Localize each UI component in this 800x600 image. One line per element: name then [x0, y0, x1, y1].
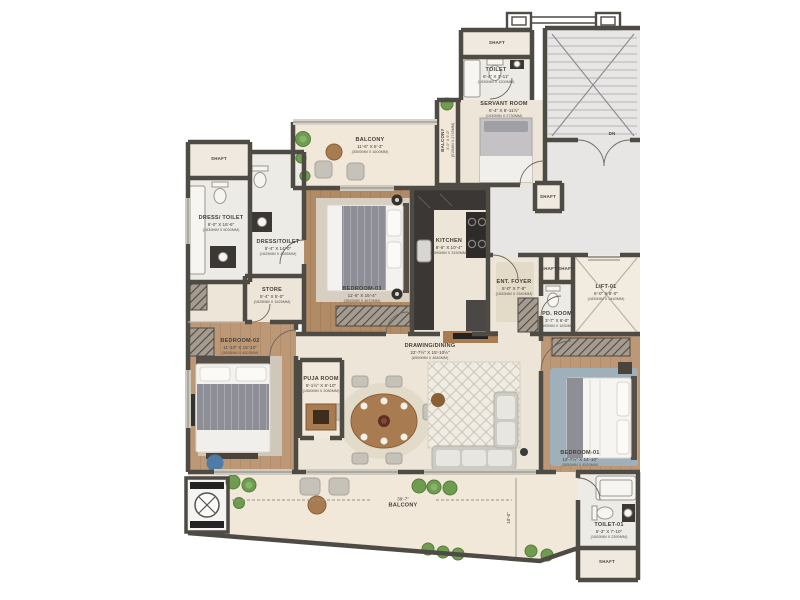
label-dim-10ft: 10'-0" — [506, 512, 512, 524]
sink-icon — [417, 240, 431, 262]
wc-icon — [252, 166, 268, 171]
floor-plan-clip: SHAFT TOILET6'-4" X 3'-11"(1930MM X 1200… — [0, 0, 642, 600]
label-bedroom-03: BEDROOM-0311'-6" X 15'-4"(3500MM X 4670M… — [342, 286, 381, 304]
wc-icon — [592, 506, 597, 520]
nightstand-icon — [618, 362, 632, 374]
table-icon — [308, 496, 326, 514]
cabinet-icon — [190, 284, 207, 310]
chair-icon — [300, 478, 320, 495]
label-puja-room: PUJA ROOM5'-1½" X 6'-10"(1560MM X 2080MM… — [303, 376, 340, 394]
label-shaft-left: SHAFT — [211, 156, 227, 162]
label-balcony-servant: BALCONY3'-0" X 9'-0"(915MM X 2745MM) — [440, 123, 456, 158]
pillow-icon — [236, 367, 266, 381]
pillow-icon — [617, 420, 629, 454]
chair-icon — [386, 453, 402, 464]
bed-headboard — [196, 356, 270, 364]
beanbag-icon — [207, 455, 224, 472]
pillow-icon — [387, 210, 401, 236]
wc-icon — [487, 59, 503, 65]
label-kitchen: KITCHEN8'-6" X 10'-4"(2590MM X 3150MM) — [431, 238, 468, 256]
wardrobe-icon — [189, 328, 214, 356]
chair-icon — [315, 161, 332, 178]
bed-headboard — [403, 203, 409, 293]
chair-icon — [347, 163, 364, 180]
puja-cabinet-icon — [306, 404, 336, 430]
fridge-icon — [466, 300, 488, 332]
pillow-icon — [200, 367, 230, 381]
label-store: STORE5'-4" X 5'-0"(1625MM X 1525MM) — [254, 287, 291, 305]
wardrobe-icon — [336, 306, 410, 326]
chair-icon — [386, 376, 402, 387]
wc-icon — [212, 182, 228, 187]
label-lift: LIFT-016'-0" X 8'-0"(1830MM X 2440MM) — [588, 284, 625, 302]
label-dress-toilet-2: DRESS/TOILET5'-4" X 14'-0"(1625MM X 4265… — [257, 239, 300, 257]
kitchen-counter — [434, 190, 488, 210]
floor-plan: SHAFT TOILET6'-4" X 3'-11"(1930MM X 1200… — [0, 0, 800, 600]
wc-icon — [546, 286, 560, 291]
label-balcony-bottom: 39'-7"BALCONY — [389, 496, 418, 509]
table-icon — [326, 144, 342, 160]
side-table-icon — [431, 393, 445, 407]
servant-furniture — [480, 118, 532, 182]
label-dn: DN — [609, 131, 616, 137]
label-toilet-01: TOILET-015'-3" X 7'-10"(1600MM X 2390MM) — [591, 522, 628, 540]
label-servant-room: SERVANT ROOM6'-4" X 8'-11½"(1930MM X 273… — [480, 101, 527, 119]
pillow-icon — [484, 121, 528, 132]
pillow-icon — [387, 242, 401, 268]
chair-icon — [329, 478, 349, 495]
label-balcony-top: BALCONY11'-6" X 5'-3"(3500MM X 1600MM) — [352, 137, 389, 155]
label-drawing-dining: DRAWING/DINING22'-7½" X 15'-10½"(6900MM … — [405, 343, 456, 361]
bed-headboard — [631, 376, 637, 460]
label-shaft-mid: SHAFT — [540, 194, 556, 200]
label-bedroom-01: BEDROOM-0112'-7½" X 14'-10"(3850MM X 452… — [560, 450, 599, 468]
sofa-set-icon — [428, 362, 528, 470]
floor-lamp-icon — [520, 448, 528, 456]
label-shaft-top: SHAFT — [489, 40, 505, 46]
shoe-cabinet-icon — [518, 298, 538, 332]
floor-plan-graphics — [0, 0, 642, 600]
chair-icon — [352, 376, 368, 387]
label-shaft-a: SHAFT — [541, 266, 557, 272]
label-bedroom-02: BEDROOM-0211'-10" X 15'-10"(3600MM X 482… — [220, 338, 259, 356]
wardrobe-icon — [552, 338, 630, 356]
label-shaft-b: SHAFT — [558, 266, 574, 272]
label-shaft-bottom: SHAFT — [599, 559, 615, 565]
pillow-icon — [617, 382, 629, 416]
label-pd-room: PD. ROOM3'-7" X 6'-0"(1090MM X 1830MM) — [539, 311, 576, 329]
label-dress-toilet-1: DRESS/ TOILET6'-0" X 16'-6"(1830MM X 503… — [199, 215, 244, 233]
label-ent-foyer: ENT. FOYER5'-0" X 7'-8"(1520MM X 2340MM) — [496, 279, 533, 297]
label-toilet-top: TOILET6'-4" X 3'-11"(1930MM X 1200MM) — [478, 67, 515, 85]
chair-icon — [352, 453, 368, 464]
